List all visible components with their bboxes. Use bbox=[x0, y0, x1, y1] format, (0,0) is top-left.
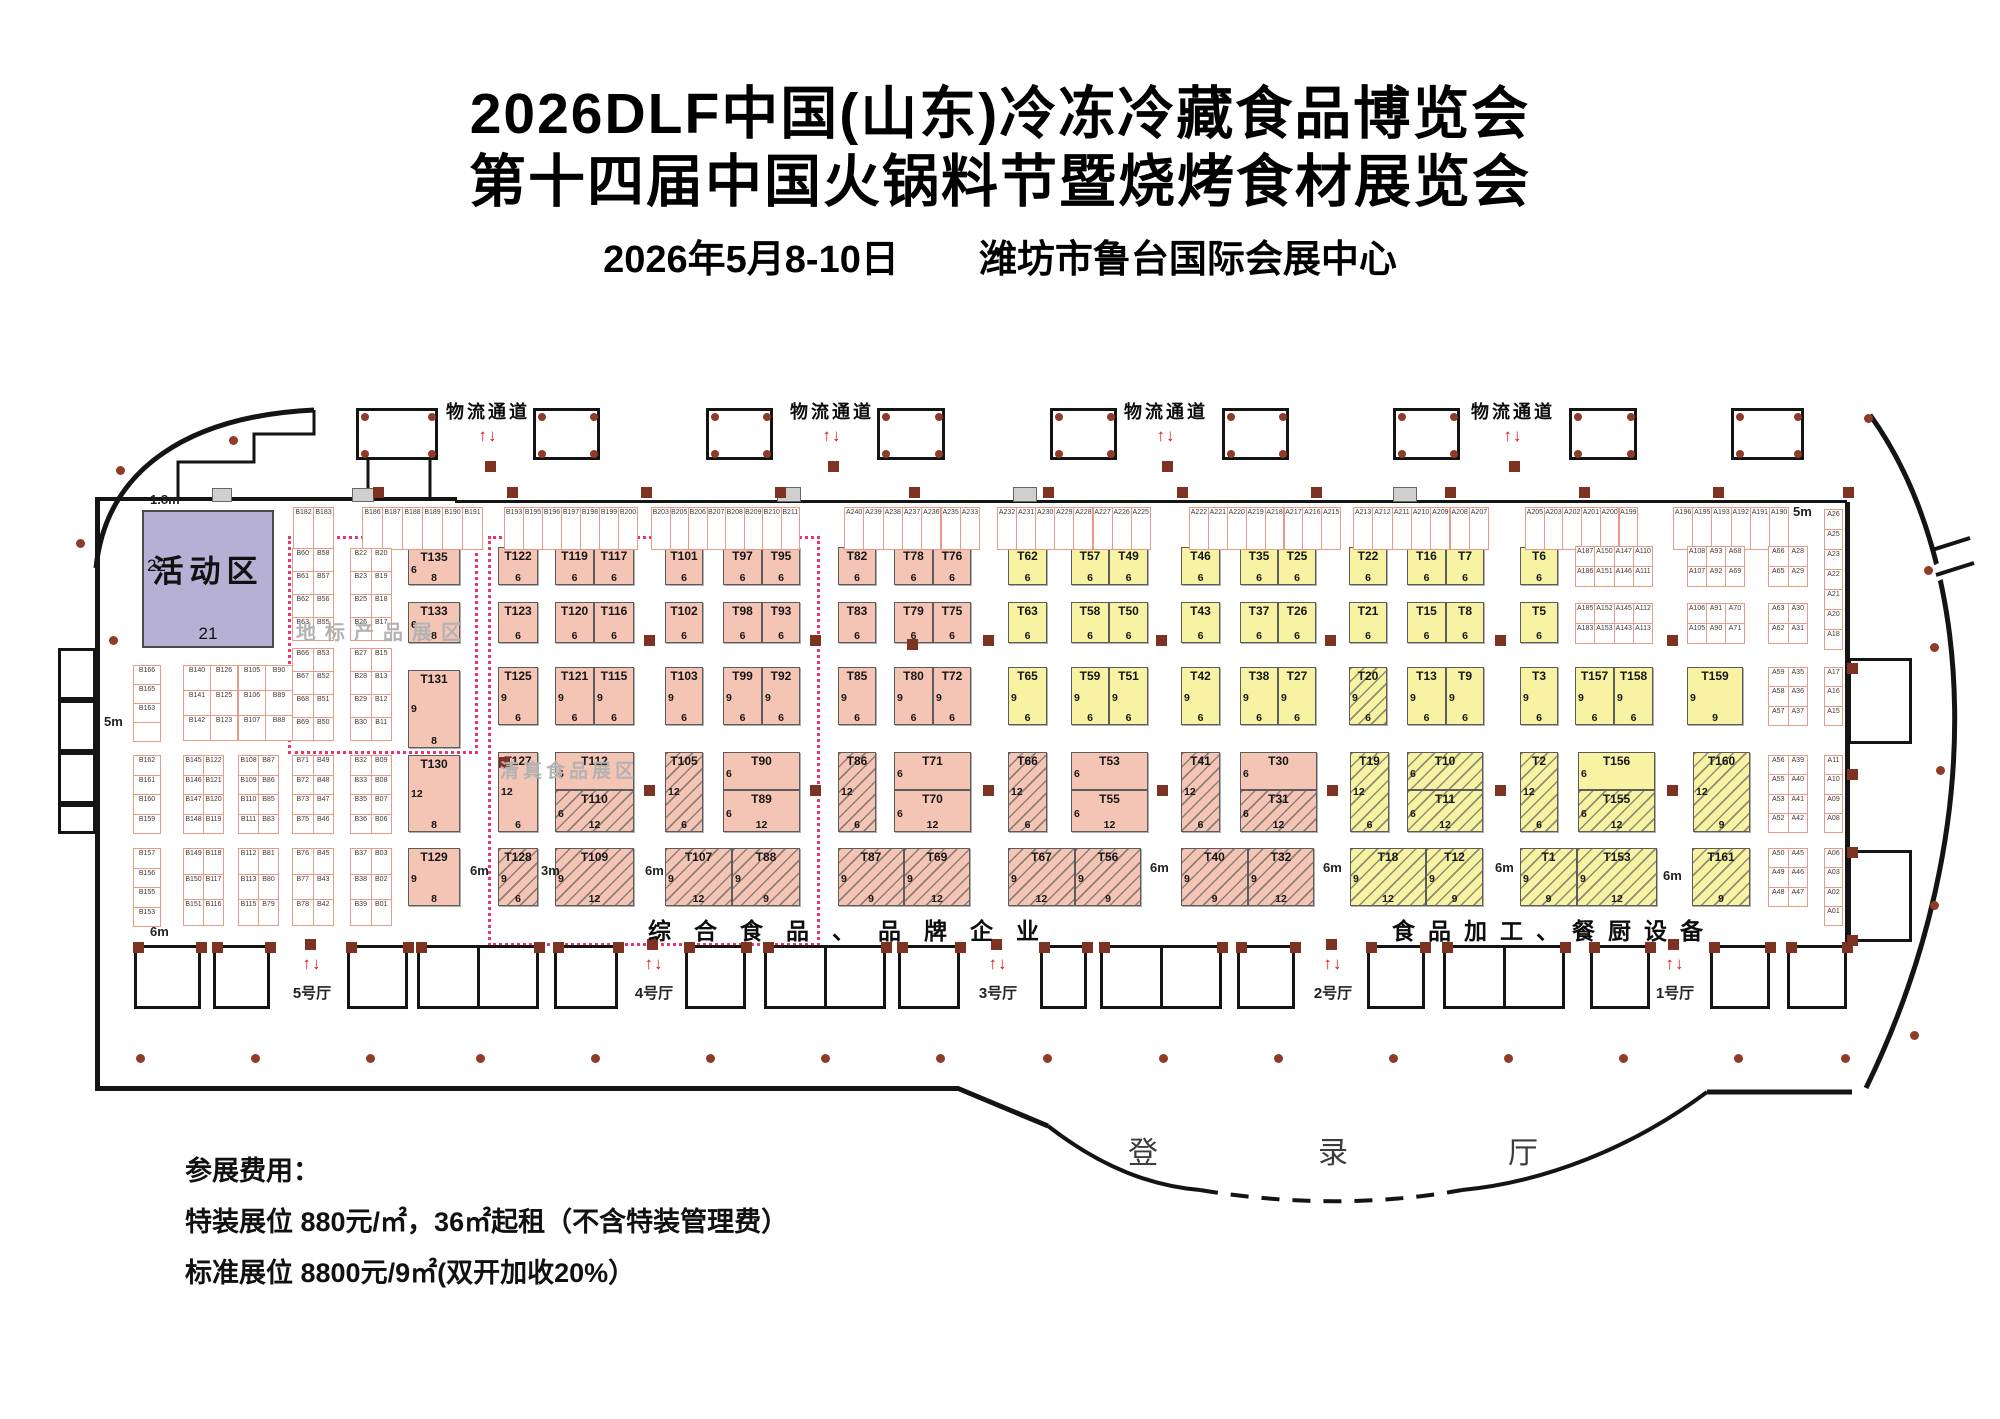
dock-pillar-dot bbox=[1107, 413, 1115, 421]
booth-width-num: 6 bbox=[499, 712, 537, 724]
booth-width-num: 6 bbox=[666, 630, 702, 642]
pillar-dot bbox=[591, 1054, 600, 1063]
booth-T50: T506 bbox=[1109, 602, 1148, 643]
booth-cell-B76: B76 bbox=[292, 848, 314, 875]
booth-cell-A42: A42 bbox=[1788, 813, 1809, 833]
booth-T83: T836 bbox=[838, 602, 876, 643]
booth-T93: T936 bbox=[762, 602, 800, 643]
booth-depth-num: 12 bbox=[1353, 786, 1365, 798]
booth-label: T30 bbox=[1241, 754, 1316, 768]
booth-depth-num: 6 bbox=[726, 808, 732, 820]
booth-cell-B159: B159 bbox=[133, 814, 161, 835]
booth-T32: T32912 bbox=[1248, 848, 1314, 906]
booth-T105: T105126 bbox=[665, 752, 703, 832]
booth-width-num: 6 bbox=[1241, 712, 1277, 724]
booth-label: T119 bbox=[556, 549, 593, 563]
booth-label: T102 bbox=[666, 604, 702, 618]
booth-depth-num: 6 bbox=[1581, 808, 1587, 820]
direction-arrows-icon: ↑↓ bbox=[1157, 426, 1176, 446]
booth-cell-A227: A227 bbox=[1093, 507, 1113, 550]
booth-depth-num: 9 bbox=[501, 873, 507, 885]
booth-cell-B02: B02 bbox=[371, 874, 393, 901]
booth-cell-A31: A31 bbox=[1788, 623, 1809, 644]
booth-depth-num: 9 bbox=[501, 692, 507, 704]
loading-dock bbox=[1393, 408, 1460, 460]
booth-cell-A219: A219 bbox=[1246, 507, 1266, 550]
loading-dock bbox=[356, 408, 438, 460]
booth-cell-B161: B161 bbox=[133, 775, 161, 796]
booth-T101: T1016 bbox=[665, 547, 703, 585]
booth-label: T26 bbox=[1279, 604, 1315, 618]
logistics-channel-label: 物流通道 bbox=[446, 398, 530, 424]
hall-room bbox=[1590, 945, 1650, 1009]
booth-cell-B81: B81 bbox=[258, 848, 279, 875]
floor-plan-canvas: 2026DLF中国(山东)冷冻冷藏食品博览会 第十四届中国火锅料节暨烧烤食材展览… bbox=[0, 0, 2000, 1419]
booth-width-num: 6 bbox=[1408, 630, 1445, 642]
booth-width-num: 6 bbox=[1009, 712, 1046, 724]
booth-width-num: 12 bbox=[1072, 819, 1147, 831]
pillar-dot bbox=[1930, 901, 1939, 910]
booth-label: T117 bbox=[595, 549, 633, 563]
booth-cell-A21: A21 bbox=[1824, 589, 1843, 610]
booth-width-num: 6 bbox=[1009, 819, 1046, 831]
booth-width-num: 6 bbox=[934, 712, 970, 724]
dock-pillar-dot bbox=[1450, 450, 1458, 458]
door-marker bbox=[1327, 785, 1338, 796]
booth-cell-B117: B117 bbox=[203, 874, 224, 901]
booth-depth-num: 9 bbox=[1243, 692, 1249, 704]
booth-cell-B107: B107 bbox=[238, 715, 266, 741]
booth-label: T11 bbox=[1408, 792, 1482, 806]
booth-T49: T496 bbox=[1109, 547, 1148, 585]
booth-cell-B07: B07 bbox=[371, 794, 393, 815]
booth-cell-A186: A186 bbox=[1575, 566, 1595, 587]
booth-width-num: 12 bbox=[1578, 893, 1656, 905]
booth-cell-B140: B140 bbox=[183, 665, 211, 691]
booth-cell-B23: B23 bbox=[350, 571, 372, 595]
booth-cell-B78: B78 bbox=[292, 899, 314, 926]
direction-arrows-icon: ↑↓ bbox=[1324, 954, 1343, 974]
booth-width-num: 6 bbox=[1615, 712, 1652, 724]
booth-depth-num: 6 bbox=[1074, 808, 1080, 820]
pillar-dot bbox=[1619, 1054, 1628, 1063]
booth-depth-num: 9 bbox=[897, 692, 903, 704]
booth-label: T93 bbox=[763, 604, 799, 618]
room-divider bbox=[824, 948, 827, 1006]
booth-cell-A203: A203 bbox=[1544, 507, 1564, 550]
booth-cell-A146: A146 bbox=[1614, 566, 1634, 587]
booth-label: T7 bbox=[1447, 549, 1483, 563]
booth-cell-B67: B67 bbox=[292, 671, 314, 695]
booth-cell-B196: B196 bbox=[542, 507, 562, 550]
booth-depth-num: 12 bbox=[1184, 786, 1196, 798]
booth-label: T160 bbox=[1694, 754, 1749, 768]
measure-label: 6m bbox=[1495, 860, 1514, 875]
door-marker bbox=[907, 639, 918, 650]
booth-T158: T15896 bbox=[1614, 667, 1653, 725]
booth-cell-A02: A02 bbox=[1824, 887, 1843, 907]
booth-T122: T1226 bbox=[498, 547, 538, 585]
booth-cell-A93: A93 bbox=[1706, 546, 1726, 567]
booth-width-num: 8 bbox=[409, 819, 459, 831]
hall-room bbox=[1237, 945, 1295, 1009]
measure-label: 6m bbox=[150, 924, 169, 939]
booth-cell-A46: A46 bbox=[1788, 867, 1809, 887]
hall-room bbox=[554, 945, 618, 1009]
direction-arrows-icon: ↑↓ bbox=[1666, 954, 1685, 974]
booth-cell-B30: B30 bbox=[350, 717, 372, 741]
booth-cell-B83: B83 bbox=[258, 814, 279, 835]
booth-cell-B01: B01 bbox=[371, 899, 393, 926]
booth-width-num: 12 bbox=[895, 819, 970, 831]
door-marker bbox=[644, 635, 655, 646]
booth-width-num: 6 bbox=[1182, 819, 1219, 831]
booth-cell-B51: B51 bbox=[313, 694, 335, 718]
booth-cell-A65: A65 bbox=[1768, 566, 1789, 587]
booth-label: T87 bbox=[839, 850, 903, 864]
door-marker bbox=[1156, 635, 1167, 646]
booth-depth-num: 9 bbox=[907, 873, 913, 885]
door-opening bbox=[352, 488, 374, 502]
booth-T21: T216 bbox=[1349, 602, 1387, 643]
booth-depth-num: 9 bbox=[936, 692, 942, 704]
booth-cell-A59: A59 bbox=[1768, 667, 1789, 687]
booth-cell-B75: B75 bbox=[292, 814, 314, 835]
door-marker bbox=[641, 487, 652, 498]
booth-width-num: 6 bbox=[839, 819, 875, 831]
booth-depth-num: 12 bbox=[501, 786, 513, 798]
booth-cell-B210: B210 bbox=[762, 507, 782, 550]
door-marker bbox=[1162, 461, 1173, 472]
booth-cell-B90: B90 bbox=[265, 665, 293, 691]
booth-cell-B162: B162 bbox=[133, 755, 161, 776]
dock-pillar-dot bbox=[590, 413, 598, 421]
logistics-channel-label: 物流通道 bbox=[1471, 398, 1555, 424]
dock-pillar-dot bbox=[763, 413, 771, 421]
booth-cell-A185: A185 bbox=[1575, 603, 1595, 624]
booth-cell-A239: A239 bbox=[863, 507, 883, 550]
booth-cell-B115: B115 bbox=[238, 899, 259, 926]
booth-width-num: 6 bbox=[763, 572, 799, 584]
hall-room bbox=[1710, 945, 1770, 1009]
booth-label: T37 bbox=[1241, 604, 1277, 618]
booth-width-num: 6 bbox=[1350, 572, 1386, 584]
booth-label: T19 bbox=[1351, 754, 1388, 768]
booth-cell-B157: B157 bbox=[133, 848, 161, 869]
booth-cell-A237: A237 bbox=[902, 507, 922, 550]
booth-label: T69 bbox=[905, 850, 969, 864]
booth-width-num: 9 bbox=[1076, 893, 1140, 905]
booth-label: T88 bbox=[733, 850, 799, 864]
dock-pillar-dot bbox=[1736, 450, 1744, 458]
booth-cell-A58: A58 bbox=[1768, 686, 1789, 706]
booth-label: T75 bbox=[934, 604, 970, 618]
booth-cell-A06: A06 bbox=[1824, 848, 1843, 868]
booth-cell-A152: A152 bbox=[1594, 603, 1614, 624]
booth-width-num: 6 bbox=[556, 572, 593, 584]
booth-T5: T56 bbox=[1520, 602, 1558, 643]
booth-depth-num: 12 bbox=[841, 786, 853, 798]
booth-cell-A112: A112 bbox=[1633, 603, 1653, 624]
booth-cell-B151: B151 bbox=[183, 899, 204, 926]
booth-cell-A50: A50 bbox=[1768, 848, 1789, 868]
booth-label: T79 bbox=[895, 604, 932, 618]
booth-cell-B09: B09 bbox=[371, 755, 393, 776]
booth-cell-B197: B197 bbox=[561, 507, 581, 550]
loading-dock bbox=[1569, 408, 1637, 460]
booth-cell-A200: A200 bbox=[1600, 507, 1620, 550]
booth-cell-B13: B13 bbox=[371, 671, 393, 695]
door-marker bbox=[1579, 487, 1590, 498]
booth-label: T110 bbox=[556, 792, 633, 806]
door-marker bbox=[1847, 847, 1858, 858]
booth-T107: T107912 bbox=[665, 848, 732, 906]
booth-cell-B122: B122 bbox=[203, 755, 224, 776]
booth-cell-B15: B15 bbox=[371, 648, 393, 672]
booth-T89: T89612 bbox=[723, 790, 800, 832]
dock-pillar-dot bbox=[935, 450, 943, 458]
booth-cell-B50: B50 bbox=[313, 717, 335, 741]
booth-width-num: 6 bbox=[1072, 572, 1108, 584]
booth-cell-B48: B48 bbox=[313, 775, 335, 796]
booth-T15: T156 bbox=[1407, 602, 1446, 643]
booth-width-num: 6 bbox=[1351, 819, 1388, 831]
booth-depth-num: 6 bbox=[897, 808, 903, 820]
booth-width-num: 12 bbox=[556, 819, 633, 831]
booth-width-num: 6 bbox=[1350, 712, 1386, 724]
booth-cell-B190: B190 bbox=[442, 507, 463, 550]
booth-label: T16 bbox=[1408, 549, 1445, 563]
booth-label: T18 bbox=[1351, 850, 1425, 864]
booth-label: T83 bbox=[839, 604, 875, 618]
door-marker bbox=[1177, 487, 1188, 498]
booth-width-num: 6 bbox=[1241, 630, 1277, 642]
booth-width-num: 6 bbox=[839, 572, 875, 584]
booth-cell-B188: B188 bbox=[402, 507, 423, 550]
booth-cell-A195: A195 bbox=[1692, 507, 1712, 550]
loading-dock bbox=[1222, 408, 1289, 460]
dock-pillar-dot bbox=[428, 450, 436, 458]
door-marker bbox=[196, 942, 207, 953]
door-marker bbox=[1290, 942, 1301, 953]
dock-pillar-dot bbox=[361, 413, 369, 421]
booth-label: T71 bbox=[895, 754, 970, 768]
booth-label: T13 bbox=[1408, 669, 1445, 683]
dock-pillar-dot bbox=[361, 450, 369, 458]
booth-label: T46 bbox=[1182, 549, 1219, 563]
booth-cell-B88: B88 bbox=[265, 715, 293, 741]
door-marker bbox=[507, 487, 518, 498]
booth-width-num: 6 bbox=[724, 572, 761, 584]
booth-T56: T5699 bbox=[1075, 848, 1141, 906]
booth-cell-B166: B166 bbox=[133, 665, 161, 685]
dock-pillar-dot bbox=[1736, 413, 1744, 421]
door-marker bbox=[644, 785, 655, 796]
door-marker bbox=[1082, 942, 1093, 953]
activity-num-bottom: 21 bbox=[144, 624, 272, 644]
booth-cell-B19: B19 bbox=[371, 571, 393, 595]
booth-label: T50 bbox=[1110, 604, 1147, 618]
booth-label: T85 bbox=[839, 669, 875, 683]
booth-depth-num: 9 bbox=[1352, 692, 1358, 704]
booth-width-num: 6 bbox=[1110, 572, 1147, 584]
booth-label: T78 bbox=[895, 549, 932, 563]
door-marker bbox=[1495, 635, 1506, 646]
booth-T51: T5196 bbox=[1109, 667, 1148, 725]
booth-cell-B203: B203 bbox=[651, 507, 671, 550]
direction-arrows-icon: ↑↓ bbox=[1504, 426, 1523, 446]
booth-cell-A201: A201 bbox=[1581, 507, 1601, 550]
booth-cell-B22: B22 bbox=[350, 548, 372, 572]
door-marker bbox=[1847, 769, 1858, 780]
dock-pillar-dot bbox=[538, 450, 546, 458]
booth-width-num: 9 bbox=[1693, 893, 1749, 905]
booth-label: T130 bbox=[409, 757, 459, 771]
booth-cell-B08: B08 bbox=[371, 775, 393, 796]
booth-cell-B125: B125 bbox=[210, 690, 238, 716]
booth-width-num: 6 bbox=[666, 819, 702, 831]
booth-cell-B142: B142 bbox=[183, 715, 211, 741]
booth-cell-A221: A221 bbox=[1208, 507, 1228, 550]
booth-cell-A29: A29 bbox=[1788, 566, 1809, 587]
door-marker bbox=[1509, 461, 1520, 472]
fee-heading: 参展费用： bbox=[185, 1146, 788, 1197]
booth-width-num: 6 bbox=[1576, 712, 1613, 724]
booth-cell-B209: B209 bbox=[744, 507, 764, 550]
booth-T57: T576 bbox=[1071, 547, 1109, 585]
booth-label: T56 bbox=[1076, 850, 1140, 864]
booth-depth-num: 12 bbox=[1523, 786, 1535, 798]
logistics-channel-label: 物流通道 bbox=[790, 398, 874, 424]
booth-cell-B68: B68 bbox=[292, 694, 314, 718]
booth-depth-num: 9 bbox=[1523, 873, 1529, 885]
booth-cell-B148: B148 bbox=[183, 814, 204, 835]
booth-cell-B77: B77 bbox=[292, 874, 314, 901]
booth-width-num: 6 bbox=[1182, 572, 1219, 584]
booth-label: T123 bbox=[499, 604, 537, 618]
booth-cell-B69: B69 bbox=[292, 717, 314, 741]
booth-cell-A37: A37 bbox=[1788, 706, 1809, 726]
booth-width-num: 9 bbox=[1694, 819, 1749, 831]
booth-cell-B141: B141 bbox=[183, 690, 211, 716]
booth-cell-A232: A232 bbox=[997, 507, 1017, 550]
booth-label: T158 bbox=[1615, 669, 1652, 683]
measure-label: 6m bbox=[1150, 860, 1169, 875]
booth-width-num: 6 bbox=[595, 630, 633, 642]
booth-depth-num: 9 bbox=[1184, 873, 1190, 885]
door-opening bbox=[1393, 487, 1417, 502]
dock-pillar-dot bbox=[538, 413, 546, 421]
booth-depth-num: 9 bbox=[1353, 873, 1359, 885]
pillar-dot bbox=[821, 1054, 830, 1063]
booth-width-num: 6 bbox=[499, 819, 537, 831]
pillar-dot bbox=[1924, 566, 1933, 575]
equipment-zone-label: 食品加工、餐厨设备 bbox=[1392, 912, 1716, 946]
booth-cell-B160: B160 bbox=[133, 794, 161, 815]
pillar-dot bbox=[1043, 1054, 1052, 1063]
booth-cell-B62: B62 bbox=[292, 594, 314, 618]
booth-T38: T3896 bbox=[1240, 667, 1278, 725]
booth-label: T3 bbox=[1521, 669, 1557, 683]
measure-label: 6m bbox=[1663, 868, 1682, 883]
booth-cell-B150: B150 bbox=[183, 874, 204, 901]
booth-cell-A63: A63 bbox=[1768, 603, 1789, 624]
halal-zone-label: 清真食品展区 bbox=[500, 756, 638, 783]
booth-width-num: 12 bbox=[905, 893, 969, 905]
booth-width-num: 6 bbox=[1182, 630, 1219, 642]
booth-cell-B28: B28 bbox=[350, 671, 372, 695]
booth-label: T5 bbox=[1521, 604, 1557, 618]
booth-cell-A113: A113 bbox=[1633, 623, 1653, 644]
booth-width-num: 6 bbox=[1521, 712, 1557, 724]
booth-T97: T976 bbox=[723, 547, 762, 585]
booth-label: T65 bbox=[1009, 669, 1046, 683]
booth-cell-A26: A26 bbox=[1824, 509, 1843, 530]
loading-dock bbox=[1050, 408, 1117, 460]
booth-cell-A213: A213 bbox=[1353, 507, 1373, 550]
booth-T156: T1566 bbox=[1578, 752, 1655, 790]
door-marker bbox=[1217, 942, 1228, 953]
booth-T42: T4296 bbox=[1181, 667, 1220, 725]
booth-T10: T106 bbox=[1407, 752, 1483, 790]
booth-T3: T396 bbox=[1520, 667, 1558, 725]
booth-cell-B109: B109 bbox=[238, 775, 259, 796]
booth-label: T115 bbox=[595, 669, 633, 683]
booth-cell-A233: A233 bbox=[960, 507, 980, 550]
booth-T35: T356 bbox=[1240, 547, 1278, 585]
booth-width-num: 6 bbox=[1447, 712, 1483, 724]
booth-depth-num: 6 bbox=[1243, 768, 1249, 780]
pillar-dot bbox=[1389, 1054, 1398, 1063]
pillar-dot bbox=[76, 539, 85, 548]
landmark-zone-label: 地标产品展区 bbox=[296, 616, 470, 645]
booth-cell-A40: A40 bbox=[1788, 774, 1809, 794]
booth-T12: T1299 bbox=[1426, 848, 1483, 906]
door-marker bbox=[1667, 785, 1678, 796]
booth-depth-num: 9 bbox=[1281, 692, 1287, 704]
booth-label: T15 bbox=[1408, 604, 1445, 618]
pillar-dot bbox=[476, 1054, 485, 1063]
booth-cell-A217: A217 bbox=[1284, 507, 1304, 550]
pillar-dot bbox=[116, 466, 125, 475]
booth-label: T62 bbox=[1009, 549, 1046, 563]
booth-label: T40 bbox=[1182, 850, 1247, 864]
hall-room bbox=[1443, 945, 1565, 1009]
measure-label: 6m bbox=[645, 863, 664, 878]
hall-room bbox=[898, 945, 960, 1009]
door-marker bbox=[1847, 935, 1858, 946]
booth-T70: T70612 bbox=[894, 790, 971, 832]
booth-label: T32 bbox=[1249, 850, 1313, 864]
dock-pillar-dot bbox=[590, 450, 598, 458]
booth-cell-B105: B105 bbox=[238, 665, 266, 691]
booth-cell-B80: B80 bbox=[258, 874, 279, 901]
booth-width-num: 9 bbox=[1521, 893, 1576, 905]
booth-width-num: 6 bbox=[595, 572, 633, 584]
booth-T20: T2096 bbox=[1349, 667, 1387, 725]
booth-cell-B25: B25 bbox=[350, 594, 372, 618]
booth-cell-B147: B147 bbox=[183, 794, 204, 815]
pillar-dot bbox=[1841, 1054, 1850, 1063]
booth-cell-A236: A236 bbox=[921, 507, 941, 550]
booth-cell-A210: A210 bbox=[1411, 507, 1431, 550]
door-marker bbox=[1765, 942, 1776, 953]
activity-num-left: 22 bbox=[147, 556, 166, 576]
booth-cell-A22: A22 bbox=[1824, 569, 1843, 590]
booth-label: T116 bbox=[595, 604, 633, 618]
booth-depth-num: 9 bbox=[841, 873, 847, 885]
registration-hall-label: 登录厅 bbox=[1128, 1128, 1698, 1172]
